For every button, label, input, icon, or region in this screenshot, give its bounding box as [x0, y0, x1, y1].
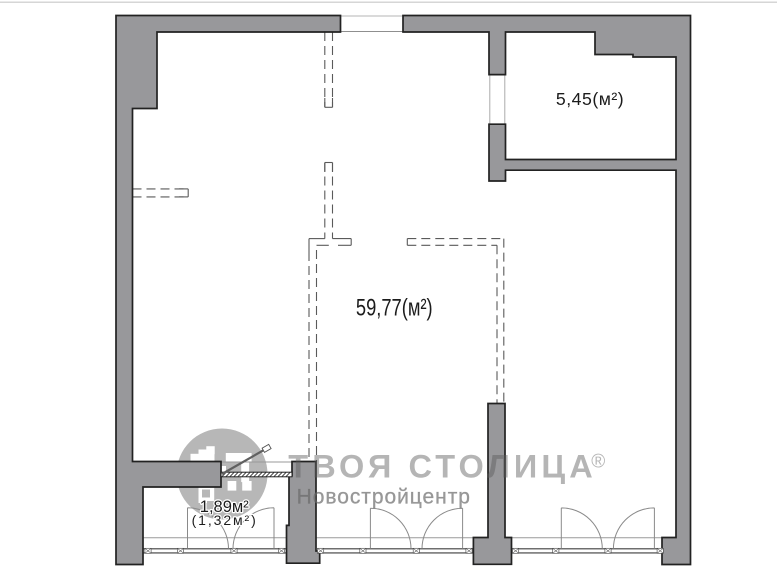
svg-text:(1,32м²): (1,32м²) [192, 512, 258, 528]
svg-text:®: ® [591, 451, 605, 472]
svg-text:Новостройцентр: Новостройцентр [297, 486, 471, 509]
svg-text:ТВОЯ СТОЛИЦА: ТВОЯ СТОЛИЦА [288, 448, 597, 484]
svg-text:5,45(м²): 5,45(м²) [556, 89, 624, 109]
svg-text:59,77(м²): 59,77(м²) [356, 294, 433, 321]
